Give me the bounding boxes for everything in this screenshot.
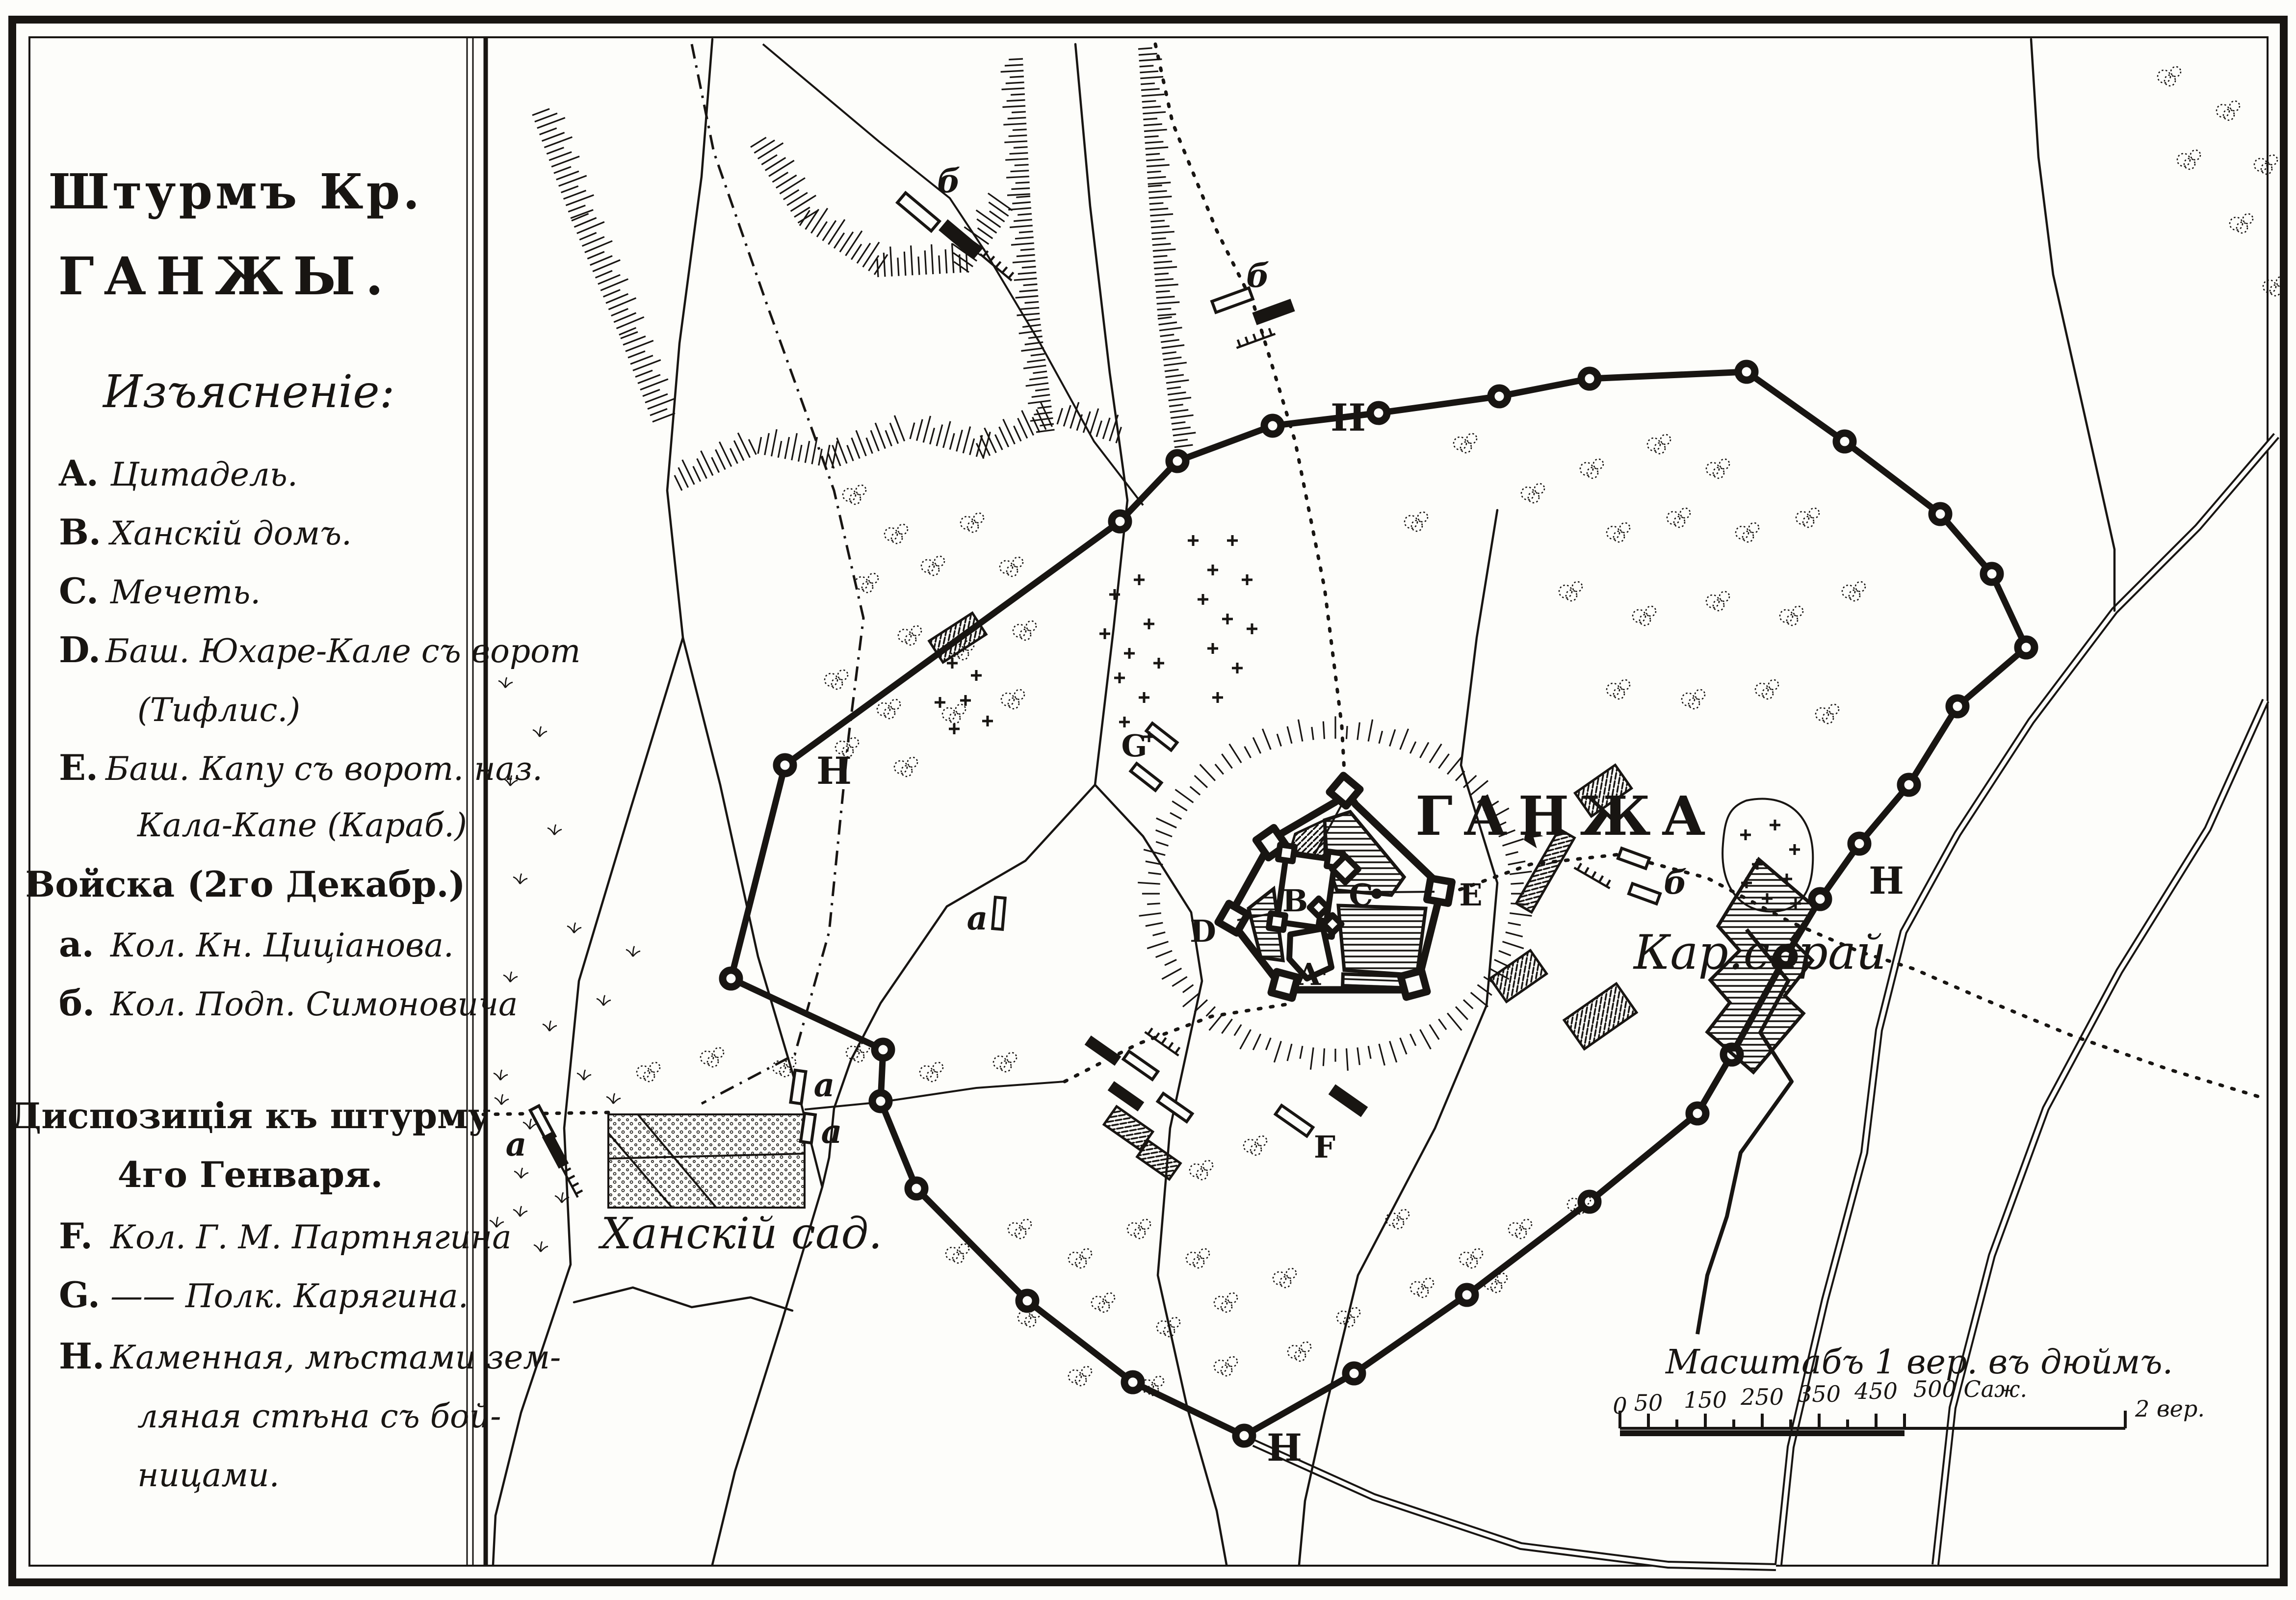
grave-cross-icon	[1198, 594, 1208, 605]
legend-panel: Штурмъ Кр. ГАНЖЫ. Изъясненіе: A.Цитадель…	[10, 164, 580, 1494]
marsh-tuft-icon	[543, 1021, 557, 1031]
artillery-symbol	[980, 249, 1017, 281]
tree-cluster	[1288, 1342, 1311, 1361]
marsh-tuft-icon	[597, 995, 611, 1006]
tree-cluster	[1214, 1293, 1237, 1312]
artillery-symbol	[1234, 327, 1275, 348]
grave-cross-icon	[982, 716, 993, 726]
marsh-tuft-icon	[495, 1094, 509, 1105]
grave-cross-icon	[1770, 820, 1780, 830]
unit-letter-b3: б	[1664, 863, 1687, 902]
wall-tower	[1169, 453, 1186, 469]
canal	[1254, 1443, 1776, 1567]
tree-cluster	[877, 699, 900, 719]
map-sheet: Штурмъ Кр. ГАНЖЫ. Изъясненіе: A.Цитадель…	[0, 0, 2296, 1600]
troop-bar	[1253, 300, 1294, 324]
river	[1935, 700, 2266, 1565]
unit-letter-b1: б	[937, 162, 961, 200]
tree-cluster	[920, 1062, 943, 1082]
tree-cluster	[1000, 557, 1023, 576]
legend-item: Кала-Капе (Караб.)	[136, 806, 467, 844]
legend-title-line2: ГАНЖЫ.	[58, 245, 393, 307]
grave-cross-icon	[1144, 619, 1154, 629]
wall-tower	[1901, 776, 1917, 793]
wall-tower	[872, 1093, 889, 1110]
tree-cluster	[1647, 435, 1670, 454]
inner-block	[1324, 915, 1342, 933]
scale-tick-50: 50	[1634, 1390, 1663, 1416]
legend-item: ляная стѣна съ бой-	[137, 1397, 501, 1435]
marsh-tuft-icon	[606, 1093, 621, 1104]
scale-tick-150: 150	[1684, 1387, 1727, 1413]
stream	[822, 785, 1095, 1187]
troop-bar	[1123, 1051, 1158, 1080]
tree-cluster	[1069, 1249, 1092, 1268]
stream	[1299, 510, 1497, 1565]
tree-cluster	[825, 670, 848, 689]
tree-cluster	[1580, 459, 1603, 478]
scale-tick-0: 0	[1613, 1393, 1627, 1419]
tree-cluster	[843, 485, 866, 504]
tree-cluster	[2217, 101, 2240, 120]
hill-hachure	[675, 402, 1122, 490]
troop-bar	[1131, 763, 1162, 790]
marsh-tuft-icon	[514, 1168, 528, 1178]
wall-tower	[1851, 835, 1868, 852]
grave-cross-icon	[1134, 574, 1145, 585]
tree-cluster	[1706, 459, 1729, 478]
legend-item: а.Кол. Кн. Циціанова.	[59, 923, 454, 965]
bluff-hachure	[1001, 59, 1055, 432]
legend-item: E.Баш. Капу съ ворот. наз.	[59, 747, 543, 788]
unit-letter-G: G	[1122, 728, 1148, 764]
wall-tower	[723, 970, 739, 987]
tree-cluster	[885, 524, 908, 543]
tree-cluster	[1667, 508, 1690, 527]
tree-cluster	[993, 1053, 1017, 1072]
tree-cluster	[1244, 1136, 1267, 1155]
wall-tower	[1581, 370, 1598, 387]
legend-item: Диспозиція къ штурму	[10, 1095, 491, 1136]
legend-item: ницами.	[137, 1456, 280, 1494]
marsh-tuft-icon	[513, 874, 527, 884]
artillery-symbol	[1234, 327, 1275, 348]
marsh-tuft-icon	[577, 1070, 591, 1080]
wall-tower	[1491, 388, 1508, 405]
grave-cross-icon	[1124, 648, 1135, 659]
artillery-symbol	[1574, 861, 1614, 888]
map-drawing	[483, 39, 2286, 1567]
scale-tick-250: 250	[1740, 1384, 1784, 1410]
river	[1935, 700, 2266, 1565]
wall-tower	[1346, 1365, 1362, 1382]
stream	[667, 39, 822, 1565]
marsh-tuft-icon	[626, 946, 640, 956]
marsh-tuft-icon	[498, 677, 513, 688]
tree-cluster	[1013, 621, 1036, 640]
scale-tick-350: 350	[1798, 1381, 1841, 1407]
khans-garden-label: Ханскій сад.	[598, 1208, 882, 1259]
grave-cross-icon	[1789, 844, 1800, 855]
grave-cross-icon	[1139, 692, 1149, 703]
grave-cross-icon	[949, 723, 960, 734]
tree-cluster	[1001, 690, 1024, 709]
grave-cross-icon	[935, 697, 945, 708]
fortress-quarter	[1343, 974, 1405, 988]
marsh-tuft-icon	[534, 1241, 548, 1252]
marsh-tuft-icon	[548, 825, 562, 835]
grave-cross-icon	[1188, 535, 1199, 546]
wall-tower	[1236, 1427, 1252, 1444]
troop-bar	[1137, 1141, 1180, 1180]
tree-cluster	[1214, 1357, 1237, 1376]
grave-cross-icon	[1114, 672, 1125, 683]
tree-cluster	[1127, 1219, 1150, 1239]
tree-cluster	[942, 704, 965, 723]
scale-tick-450: 450	[1854, 1378, 1898, 1404]
building	[1564, 983, 1637, 1049]
wall-tower	[777, 757, 793, 774]
tree-cluster	[1755, 680, 1778, 699]
tree-cluster	[1190, 1161, 1213, 1180]
legend-item: H.Каменная, мѣстами зем-	[59, 1335, 561, 1377]
tree-cluster	[701, 1048, 724, 1067]
legend-title-line1: Штурмъ Кр.	[49, 164, 422, 220]
tree-cluster	[2177, 150, 2200, 169]
fortress-quarter	[1338, 905, 1426, 975]
tree-cluster	[1607, 680, 1630, 699]
fortress-bastion	[1401, 971, 1427, 997]
troop-bar	[897, 193, 939, 231]
tree-cluster	[1454, 434, 1477, 453]
marsh-tuft-icon	[513, 1206, 527, 1216]
troop-bar	[1330, 1085, 1367, 1116]
tree-cluster	[1273, 1268, 1296, 1288]
troop-bar	[992, 897, 1005, 929]
troop-bar	[801, 1113, 815, 1143]
wall-tower	[1112, 513, 1128, 530]
tree-cluster	[1559, 582, 1582, 601]
marsh-tuft-icon	[503, 972, 518, 982]
grave-cross-icon	[971, 670, 982, 681]
artillery-symbol	[558, 1158, 584, 1197]
road-dotted	[1155, 44, 1345, 780]
wall-letter-top: Н	[1331, 396, 1366, 439]
fort-letter-D: D	[1190, 913, 1216, 949]
marsh-tuft-icon	[567, 923, 581, 933]
legend-item: F.Кол. Г. М. Партнягина	[59, 1215, 512, 1257]
tree-cluster	[1706, 592, 1729, 611]
tree-cluster	[1816, 704, 1839, 723]
grave-cross-icon	[1153, 658, 1164, 669]
tree-cluster	[855, 573, 878, 593]
unit-letter-a4: а	[506, 1125, 527, 1163]
grave-cross-icon	[1212, 692, 1223, 703]
wall-letter-east: Н	[1869, 859, 1904, 903]
legend-item: B.Ханскій домъ.	[59, 511, 352, 553]
wall-tower	[1019, 1292, 1036, 1309]
grave-cross-icon	[1242, 574, 1252, 585]
legend-item: D.Баш. Юхаре-Кале съ ворот	[59, 629, 580, 671]
legend-item: C.Мечеть.	[59, 570, 261, 612]
legend-item: Войска (2го Декабр.)	[25, 863, 465, 905]
troop-bar	[1276, 1106, 1313, 1136]
wall-tower	[2018, 639, 2035, 656]
map-canvas: Штурмъ Кр. ГАНЖЫ. Изъясненіе: A.Цитадель…	[0, 0, 2296, 1600]
building	[1490, 951, 1546, 1002]
grave-cross-icon	[1207, 565, 1218, 575]
tree-cluster	[1633, 606, 1656, 625]
citadel-tower	[1278, 845, 1295, 861]
grave-cross-icon	[1099, 628, 1110, 639]
troop-bar	[1629, 883, 1660, 903]
fort-letter-E: E	[1459, 877, 1482, 913]
stream	[574, 1288, 792, 1311]
wall-tower	[1949, 698, 1966, 715]
legend-item: б.Кол. Подп. Симоновича	[59, 982, 518, 1024]
marsh-tuft-icon	[533, 726, 547, 737]
city-name-label: ГАНЖА	[1415, 784, 1716, 848]
tree-cluster	[921, 556, 944, 575]
inner-block	[1310, 899, 1328, 917]
wall-tower	[908, 1180, 925, 1197]
wall-tower	[1124, 1374, 1141, 1391]
canal	[1254, 1443, 1776, 1567]
wall-letter-west: Н	[816, 749, 852, 793]
hill-hachure	[532, 109, 676, 422]
fort-letter-C: C	[1349, 877, 1373, 913]
wall-tower	[1264, 417, 1281, 434]
wall-tower	[875, 1041, 891, 1058]
unit-letter-a2: а	[814, 1066, 835, 1104]
wall-tower	[1689, 1105, 1706, 1122]
tree-cluster	[2230, 214, 2253, 233]
tree-cluster	[2158, 67, 2181, 86]
scale-bar	[1620, 1411, 2125, 1428]
khans-garden	[608, 1114, 805, 1208]
tree-cluster	[894, 757, 917, 776]
unit-letter-F: F	[1314, 1129, 1335, 1165]
tree-cluster	[1509, 1219, 1532, 1239]
grave-cross-icon	[1232, 663, 1243, 673]
fort-letter-A: A	[1297, 956, 1321, 992]
tree-cluster	[961, 513, 984, 532]
wall-tower	[1370, 405, 1387, 421]
grave-cross-icon	[1247, 623, 1257, 634]
legend-item: 4го Генваря.	[118, 1154, 383, 1195]
wall-letter-south: Н	[1267, 1426, 1302, 1470]
artillery-symbol	[1574, 861, 1614, 888]
tree-cluster	[2254, 155, 2277, 174]
tree-cluster	[1186, 1249, 1209, 1268]
tree-cluster	[1736, 523, 1759, 542]
legend-heading: Изъясненіе:	[102, 365, 395, 418]
wall-tower	[1459, 1287, 1475, 1303]
tree-cluster	[1386, 1210, 1409, 1229]
gate-dot	[1372, 889, 1381, 898]
legend-item: G.—— Полк. Карягина.	[59, 1274, 469, 1316]
fortress-bastion	[1271, 972, 1298, 998]
tree-cluster	[1842, 582, 1865, 601]
scale-end-label: 2 вер.	[2135, 1395, 2205, 1422]
scale-tick-500: 500 Саж.	[1913, 1376, 2027, 1402]
troop-bar	[1158, 1093, 1192, 1122]
tree-cluster	[1410, 1278, 1434, 1297]
tree-cluster	[946, 1244, 969, 1263]
tree-cluster	[1092, 1293, 1115, 1312]
unit-letter-a1: а	[967, 899, 988, 937]
troop-bar	[1109, 1082, 1143, 1110]
marsh-tuft-icon	[494, 1070, 508, 1080]
unit-letter-b2: б	[1246, 257, 1270, 295]
troop-bar	[1618, 848, 1649, 868]
wall-tower	[1836, 433, 1853, 450]
wall-tower	[1932, 506, 1949, 522]
grave-cross-icon	[1740, 829, 1751, 840]
fortress-bastion	[1427, 878, 1452, 903]
bluff-hachure	[1138, 48, 1196, 447]
road-dashdot	[692, 44, 863, 1104]
grave-cross-icon	[1207, 643, 1218, 654]
fort-letter-B: B	[1282, 883, 1308, 919]
road-dotted	[483, 1112, 608, 1114]
legend-item: A.Цитадель.	[58, 452, 298, 494]
artillery-symbol	[558, 1158, 584, 1197]
artillery-symbol	[980, 249, 1017, 281]
tree-cluster	[1405, 512, 1428, 531]
tree-cluster	[1460, 1249, 1483, 1268]
tree-cluster	[898, 626, 921, 645]
wall-tower	[1738, 363, 1755, 380]
wall-tower	[1983, 566, 2000, 582]
grave-cross-icon	[1222, 614, 1233, 624]
tree-cluster	[1682, 690, 1705, 709]
grave-cross-icon	[1227, 535, 1238, 546]
stream	[2031, 39, 2114, 611]
tree-cluster	[1780, 606, 1803, 625]
road	[805, 1082, 1065, 1110]
tree-cluster	[1607, 523, 1630, 542]
tree-cluster	[1521, 484, 1544, 503]
grave-cross-icon	[1119, 717, 1130, 727]
unit-letter-a3: а	[821, 1112, 842, 1151]
tree-cluster	[637, 1062, 660, 1082]
caravanserai-label: Кар.сарай	[1633, 925, 1886, 980]
legend-item: (Тифлис.)	[137, 691, 300, 729]
tree-cluster	[1008, 1219, 1031, 1239]
tree-cluster	[1796, 508, 1819, 527]
troop-bar	[1086, 1036, 1120, 1065]
tree-cluster	[1069, 1367, 1092, 1386]
